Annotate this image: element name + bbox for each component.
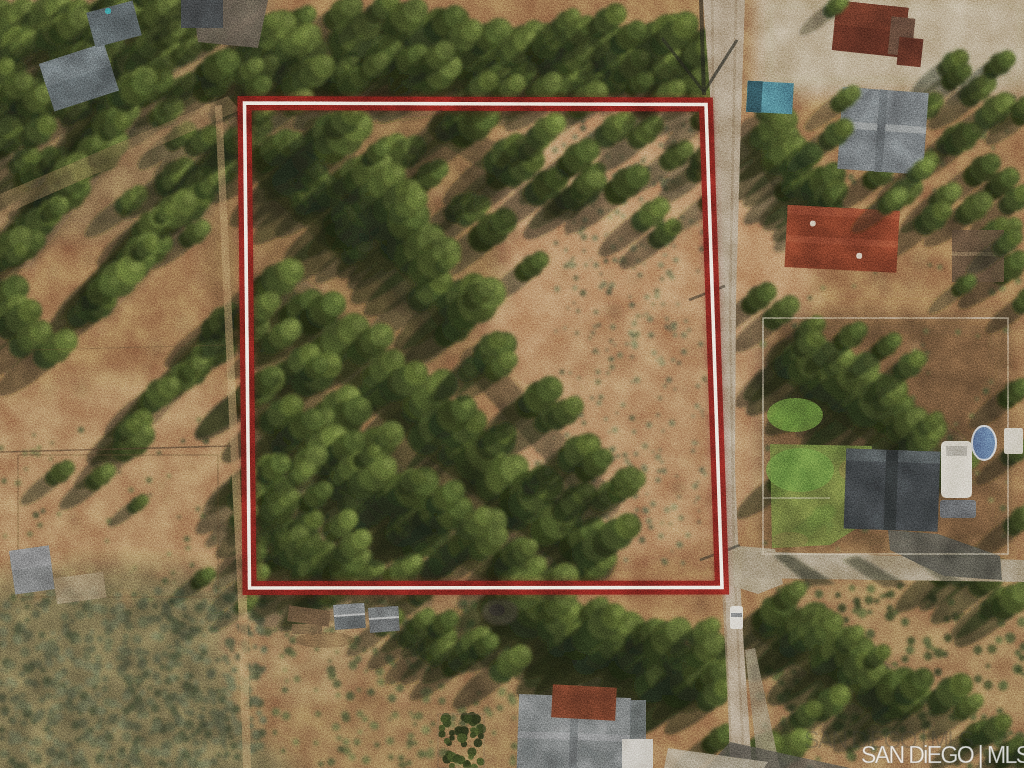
- svg-text:SAN DiEGO | MLS: SAN DiEGO | MLS: [861, 742, 1024, 768]
